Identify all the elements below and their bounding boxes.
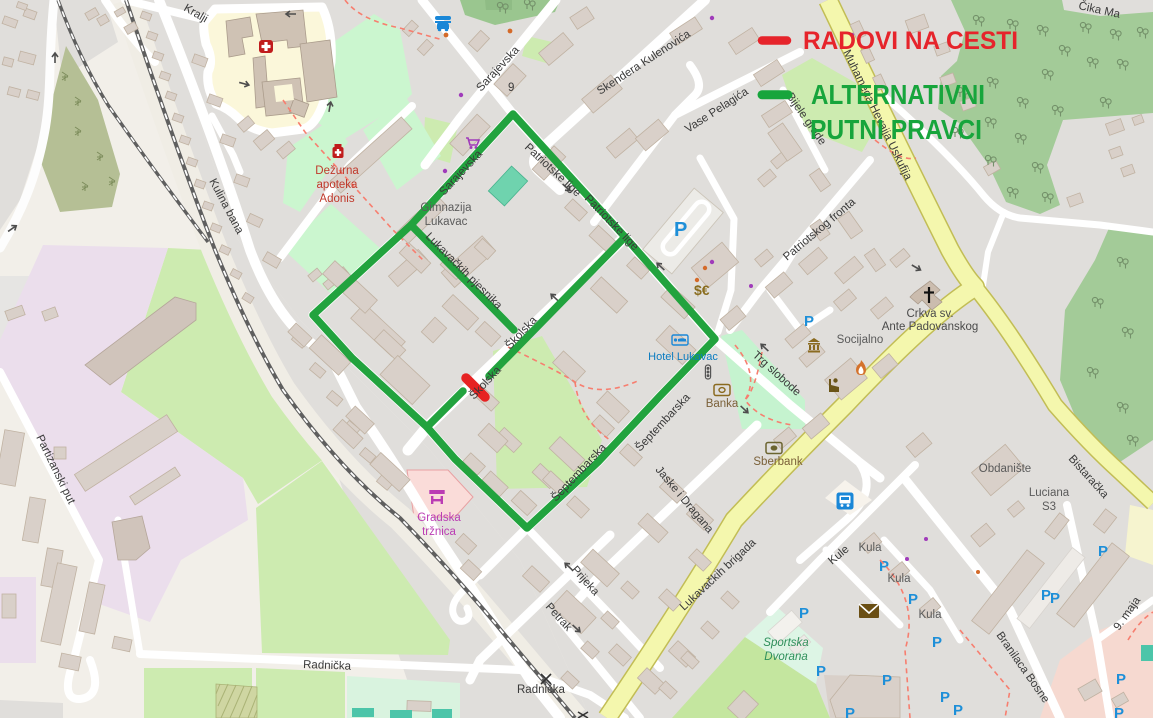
- svg-text:Socijalno: Socijalno: [837, 334, 884, 346]
- svg-text:P: P: [882, 672, 892, 689]
- svg-text:ALTERNATIVNI: ALTERNATIVNI: [811, 79, 985, 110]
- svg-text:Crkva sv.: Crkva sv.: [906, 308, 953, 320]
- svg-text:S3: S3: [1042, 501, 1056, 513]
- svg-text:Gimnazija: Gimnazija: [420, 202, 472, 214]
- svg-text:Kula: Kula: [918, 609, 942, 621]
- svg-text:P: P: [816, 663, 826, 680]
- svg-text:$€: $€: [694, 282, 710, 298]
- svg-text:Kula: Kula: [887, 573, 911, 585]
- svg-text:Lukavac: Lukavac: [425, 216, 468, 228]
- svg-text:Radnička: Radnička: [303, 659, 352, 673]
- svg-text:P: P: [1114, 705, 1124, 718]
- svg-text:P: P: [804, 313, 814, 330]
- svg-text:9: 9: [508, 82, 514, 94]
- svg-text:P: P: [1116, 671, 1126, 688]
- svg-text:P: P: [1050, 590, 1060, 607]
- svg-text:PUTNI PRAVCI: PUTNI PRAVCI: [810, 114, 982, 145]
- svg-text:Radnička: Radnička: [517, 684, 566, 696]
- svg-text:Adonis: Adonis: [319, 193, 354, 205]
- svg-text:Dežurna: Dežurna: [315, 165, 359, 177]
- svg-text:tržnica: tržnica: [422, 526, 456, 538]
- svg-text:P: P: [932, 634, 942, 651]
- svg-text:Ante Padovanskog: Ante Padovanskog: [882, 321, 979, 333]
- svg-text:Luciana: Luciana: [1029, 487, 1070, 499]
- svg-text:apoteka: apoteka: [317, 179, 359, 191]
- svg-text:Sberbank: Sberbank: [753, 456, 802, 468]
- svg-text:Obdanište: Obdanište: [979, 463, 1031, 475]
- svg-text:RADOVI NA CESTI: RADOVI NA CESTI: [803, 27, 1018, 55]
- svg-text:Banka: Banka: [706, 398, 739, 410]
- svg-text:P: P: [799, 605, 809, 622]
- svg-text:Kula: Kula: [858, 542, 882, 554]
- svg-text:P: P: [953, 702, 963, 718]
- svg-text:P: P: [845, 705, 855, 718]
- svg-text:P: P: [1098, 543, 1108, 560]
- svg-text:P: P: [940, 689, 950, 706]
- svg-text:P: P: [674, 219, 687, 241]
- svg-text:Gradska: Gradska: [417, 512, 461, 524]
- svg-text:P: P: [908, 591, 918, 608]
- svg-text:Dvorana: Dvorana: [764, 651, 807, 663]
- svg-text:Hotel Lukavac: Hotel Lukavac: [648, 351, 718, 363]
- svg-text:Sportska: Sportska: [763, 637, 808, 649]
